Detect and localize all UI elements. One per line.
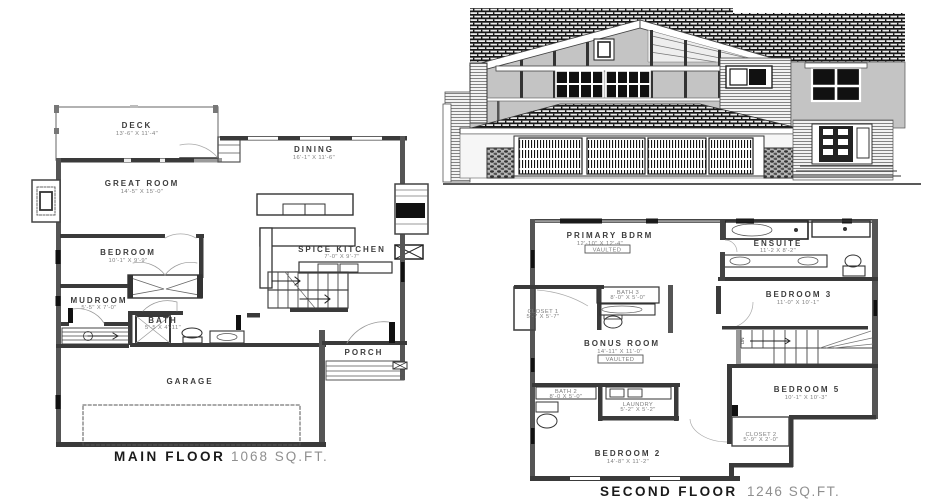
svg-text:BATH: BATH [148, 316, 178, 325]
svg-text:10'-1" X 10'-3": 10'-1" X 10'-3" [785, 395, 828, 401]
svg-text:14'-5" X 15'-0": 14'-5" X 15'-0" [121, 189, 164, 195]
svg-text:BONUS ROOM: BONUS ROOM [584, 339, 660, 348]
svg-text:SPICE KITCHEN: SPICE KITCHEN [298, 245, 386, 254]
svg-text:11'-2 X 8'-2": 11'-2 X 8'-2" [760, 248, 796, 254]
svg-text:MUDROOM: MUDROOM [70, 296, 127, 305]
svg-text:VAULTED: VAULTED [606, 357, 635, 363]
svg-text:SECOND FLOOR: SECOND FLOOR [600, 484, 738, 499]
svg-text:10'-1" X 9'-9": 10'-1" X 9'-9" [109, 258, 148, 264]
svg-text:BEDROOM 3: BEDROOM 3 [766, 290, 832, 299]
svg-text:5'-7 X 5'-7": 5'-7 X 5'-7" [527, 314, 560, 320]
svg-text:5'-9" X 2'-0": 5'-9" X 2'-0" [743, 437, 778, 443]
svg-text:BEDROOM 2: BEDROOM 2 [595, 449, 661, 458]
svg-text:8'-0 X 5'-0": 8'-0 X 5'-0" [550, 394, 583, 400]
svg-text:13'-6" X 11'-4": 13'-6" X 11'-4" [116, 131, 158, 137]
svg-text:PORCH: PORCH [345, 348, 384, 357]
svg-text:8'-0" X 5'-0": 8'-0" X 5'-0" [610, 295, 645, 301]
svg-text:7'-0" X 9'-7": 7'-0" X 9'-7" [324, 254, 359, 260]
svg-text:12'-10" X 12'-4": 12'-10" X 12'-4" [577, 241, 623, 247]
svg-text:PRIMARY BDRM: PRIMARY BDRM [567, 231, 654, 240]
svg-text:DECK: DECK [122, 121, 153, 130]
svg-text:BEDROOM: BEDROOM [100, 248, 156, 257]
svg-text:14'-8" X 11'-2": 14'-8" X 11'-2" [607, 459, 649, 465]
svg-text:DINING: DINING [294, 145, 334, 154]
svg-text:11'-0" X 10'-1": 11'-0" X 10'-1" [777, 300, 819, 306]
svg-text:16'-1" X 11'-6": 16'-1" X 11'-6" [293, 155, 335, 161]
svg-text:1246 SQ.FT.: 1246 SQ.FT. [747, 484, 840, 499]
svg-text:5'-5 X 4'-11": 5'-5 X 4'-11" [145, 325, 181, 331]
svg-text:GREAT ROOM: GREAT ROOM [105, 179, 180, 188]
svg-text:DN: DN [740, 338, 745, 345]
svg-text:ENSUITE: ENSUITE [754, 239, 803, 248]
svg-text:14'-11" X 11'-0": 14'-11" X 11'-0" [597, 349, 642, 355]
svg-text:VAULTED: VAULTED [593, 248, 622, 254]
svg-text:GARAGE: GARAGE [166, 377, 213, 386]
svg-text:BEDROOM 5: BEDROOM 5 [774, 385, 840, 394]
svg-text:MAIN FLOOR: MAIN FLOOR [114, 449, 226, 464]
svg-text:5'-2" X 5'-2": 5'-2" X 5'-2" [620, 407, 655, 413]
svg-text:1068 SQ.FT.: 1068 SQ.FT. [231, 449, 329, 464]
